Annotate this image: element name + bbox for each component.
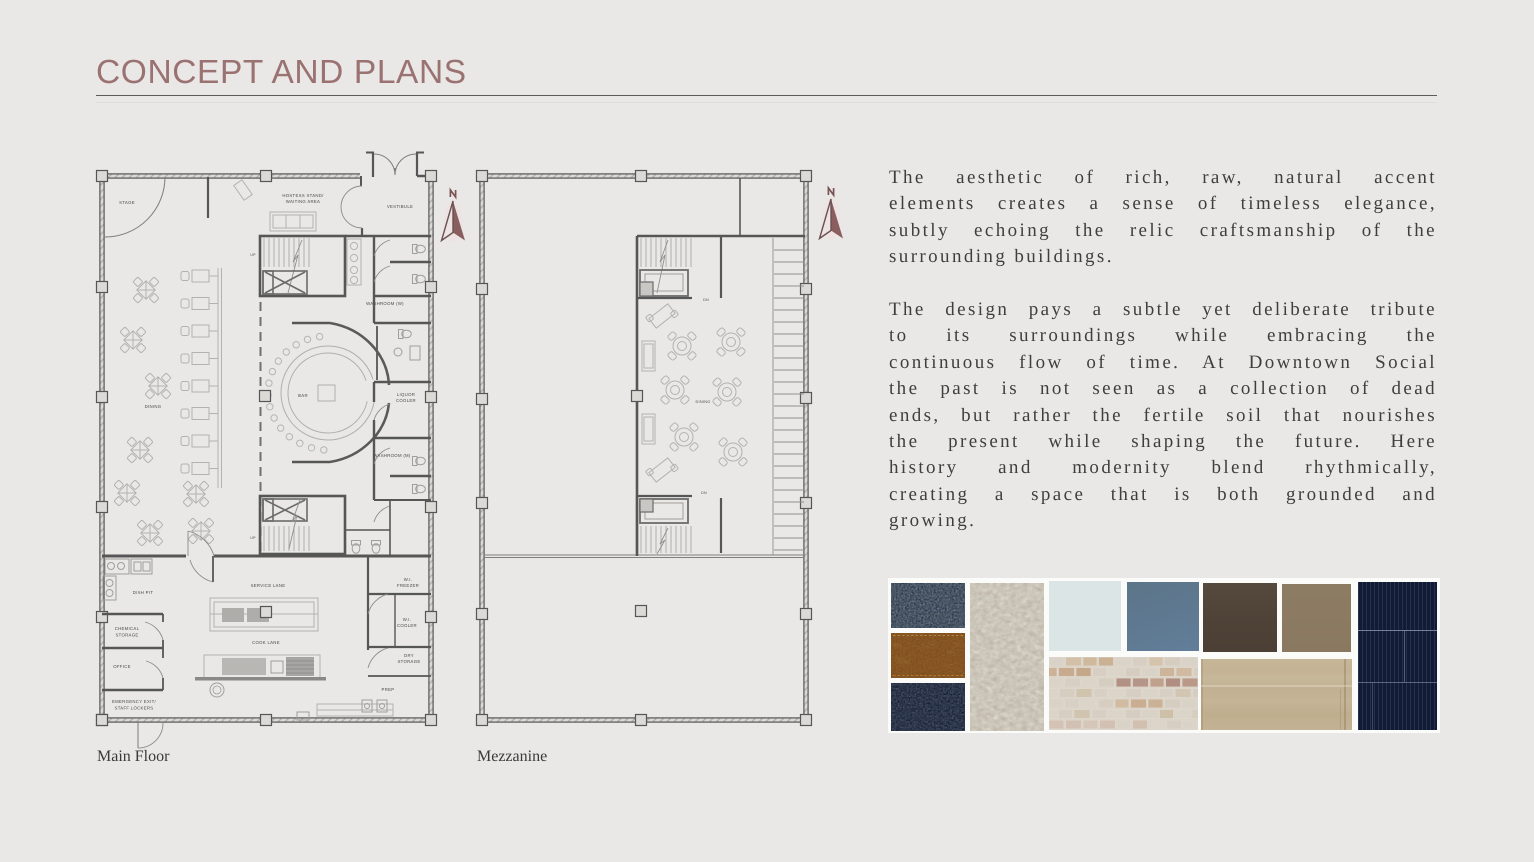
svg-text:W.I.: W.I. (404, 577, 413, 582)
svg-text:VESTIBULE: VESTIBULE (387, 204, 413, 209)
svg-text:STORAGE: STORAGE (397, 659, 420, 664)
svg-text:PREP: PREP (382, 687, 395, 692)
svg-text:DN: DN (701, 491, 707, 495)
svg-text:OFFICE: OFFICE (113, 664, 131, 669)
svg-text:DINING: DINING (145, 404, 162, 409)
svg-text:COOK LANE: COOK LANE (252, 640, 280, 645)
svg-text:UP: UP (250, 253, 256, 257)
svg-text:SERVICE LANE: SERVICE LANE (251, 583, 286, 588)
svg-text:UP: UP (250, 536, 256, 540)
svg-text:WASHROOM (W): WASHROOM (W) (366, 301, 404, 306)
svg-text:CHEMICAL: CHEMICAL (115, 626, 140, 631)
svg-text:HOSTESS STAND/: HOSTESS STAND/ (282, 193, 324, 198)
svg-text:FREEZER: FREEZER (397, 583, 419, 588)
svg-text:BAR: BAR (298, 393, 308, 398)
svg-text:W.I.: W.I. (403, 617, 412, 622)
svg-text:COOLER: COOLER (396, 398, 416, 403)
svg-text:DRY: DRY (404, 653, 414, 658)
svg-text:COOLER: COOLER (397, 623, 417, 628)
svg-text:DISH PIT: DISH PIT (133, 590, 154, 595)
svg-text:STAFF LOCKERS: STAFF LOCKERS (115, 706, 154, 711)
svg-text:DN: DN (703, 298, 709, 302)
svg-text:STORAGE: STORAGE (115, 633, 138, 638)
svg-text:DINING: DINING (695, 400, 710, 404)
svg-text:EMERGENCY EXIT/: EMERGENCY EXIT/ (112, 699, 157, 704)
svg-text:WASHROOM (M): WASHROOM (M) (373, 453, 411, 458)
svg-text:WAITING AREA: WAITING AREA (286, 199, 320, 204)
svg-text:STAGE: STAGE (119, 200, 135, 205)
svg-text:LIQUOR: LIQUOR (397, 392, 415, 397)
